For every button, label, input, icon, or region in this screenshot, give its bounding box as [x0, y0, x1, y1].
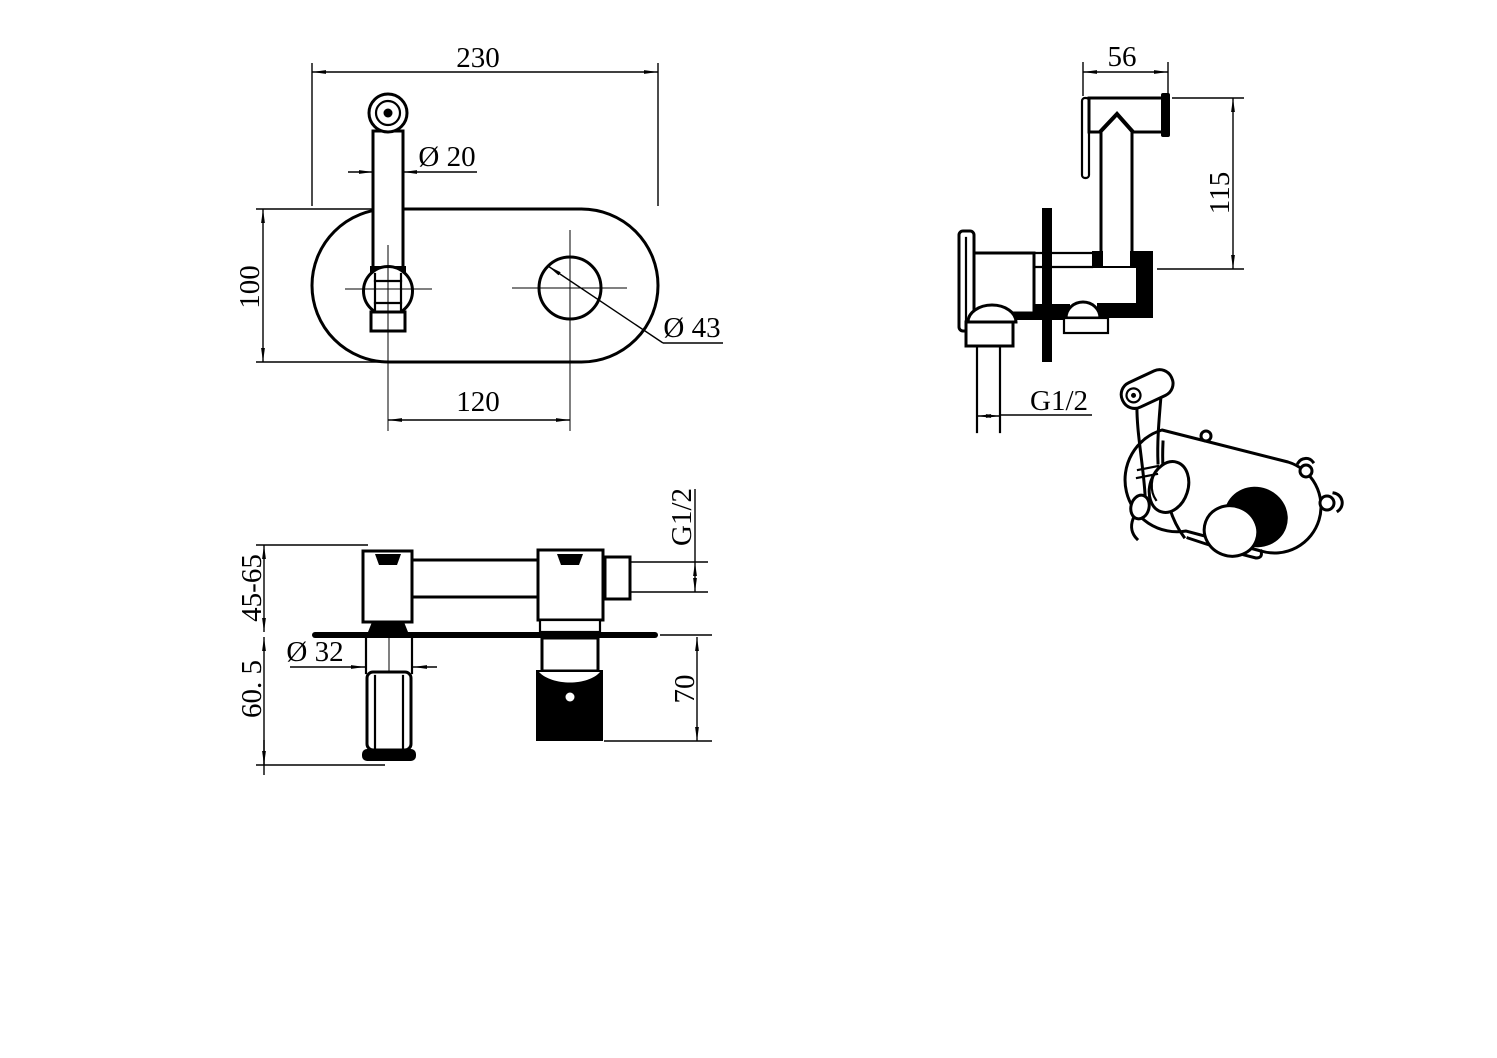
handle-end-cap	[362, 749, 416, 761]
handle-diameter-dim-label: Ø 32	[286, 636, 343, 668]
section-view: 45-65 60. 5 G1/2	[236, 488, 712, 775]
wall-plate-edge	[312, 632, 658, 638]
perspective-view	[1117, 365, 1342, 563]
mounting-tab-top	[1201, 431, 1211, 441]
perspective-sprayer-head	[1117, 365, 1177, 412]
side-view: 56 115	[959, 41, 1244, 432]
side-thread-label: G1/2	[1030, 385, 1088, 417]
wall-plate-section	[1042, 208, 1052, 362]
technical-drawing-canvas: 230 100 Ø 20 120	[0, 0, 1497, 1058]
front-view: 230 100 Ø 20 120	[234, 42, 723, 431]
hole-diameter-dim-label: Ø 43	[663, 312, 720, 344]
head-width-dim-label: 56	[1108, 41, 1137, 73]
mounting-tab-right	[1300, 465, 1312, 477]
valve-screw-hole	[566, 693, 575, 702]
outlet-fitting	[966, 322, 1013, 346]
mounting-tab-end	[1320, 496, 1334, 510]
head-end-cap	[1161, 93, 1170, 137]
perspective-handle	[1137, 401, 1145, 494]
lower-depth-dim-label: 60. 5	[236, 660, 268, 718]
head-arrow-detail	[1100, 114, 1133, 132]
hose-nut	[1128, 493, 1152, 521]
valve-neck	[542, 638, 598, 671]
valve-height-dim-label: 70	[669, 675, 701, 704]
bracket-fitting	[1064, 318, 1108, 333]
front-width-dim-label: 230	[456, 42, 500, 74]
spout-diameter-dim-label: Ø 20	[418, 141, 475, 173]
depth-range-dim-label: 45-65	[236, 554, 268, 622]
section-thread-label: G1/2	[666, 488, 698, 546]
mixer-handle	[367, 672, 411, 750]
side-height-dim-label: 115	[1204, 172, 1236, 214]
hole-spacing-dim-label: 120	[456, 386, 500, 418]
bracket-dome	[1066, 302, 1100, 318]
outlet-nipple	[605, 557, 630, 599]
valve-body	[974, 253, 1034, 313]
front-height-dim-label: 100	[234, 265, 266, 309]
